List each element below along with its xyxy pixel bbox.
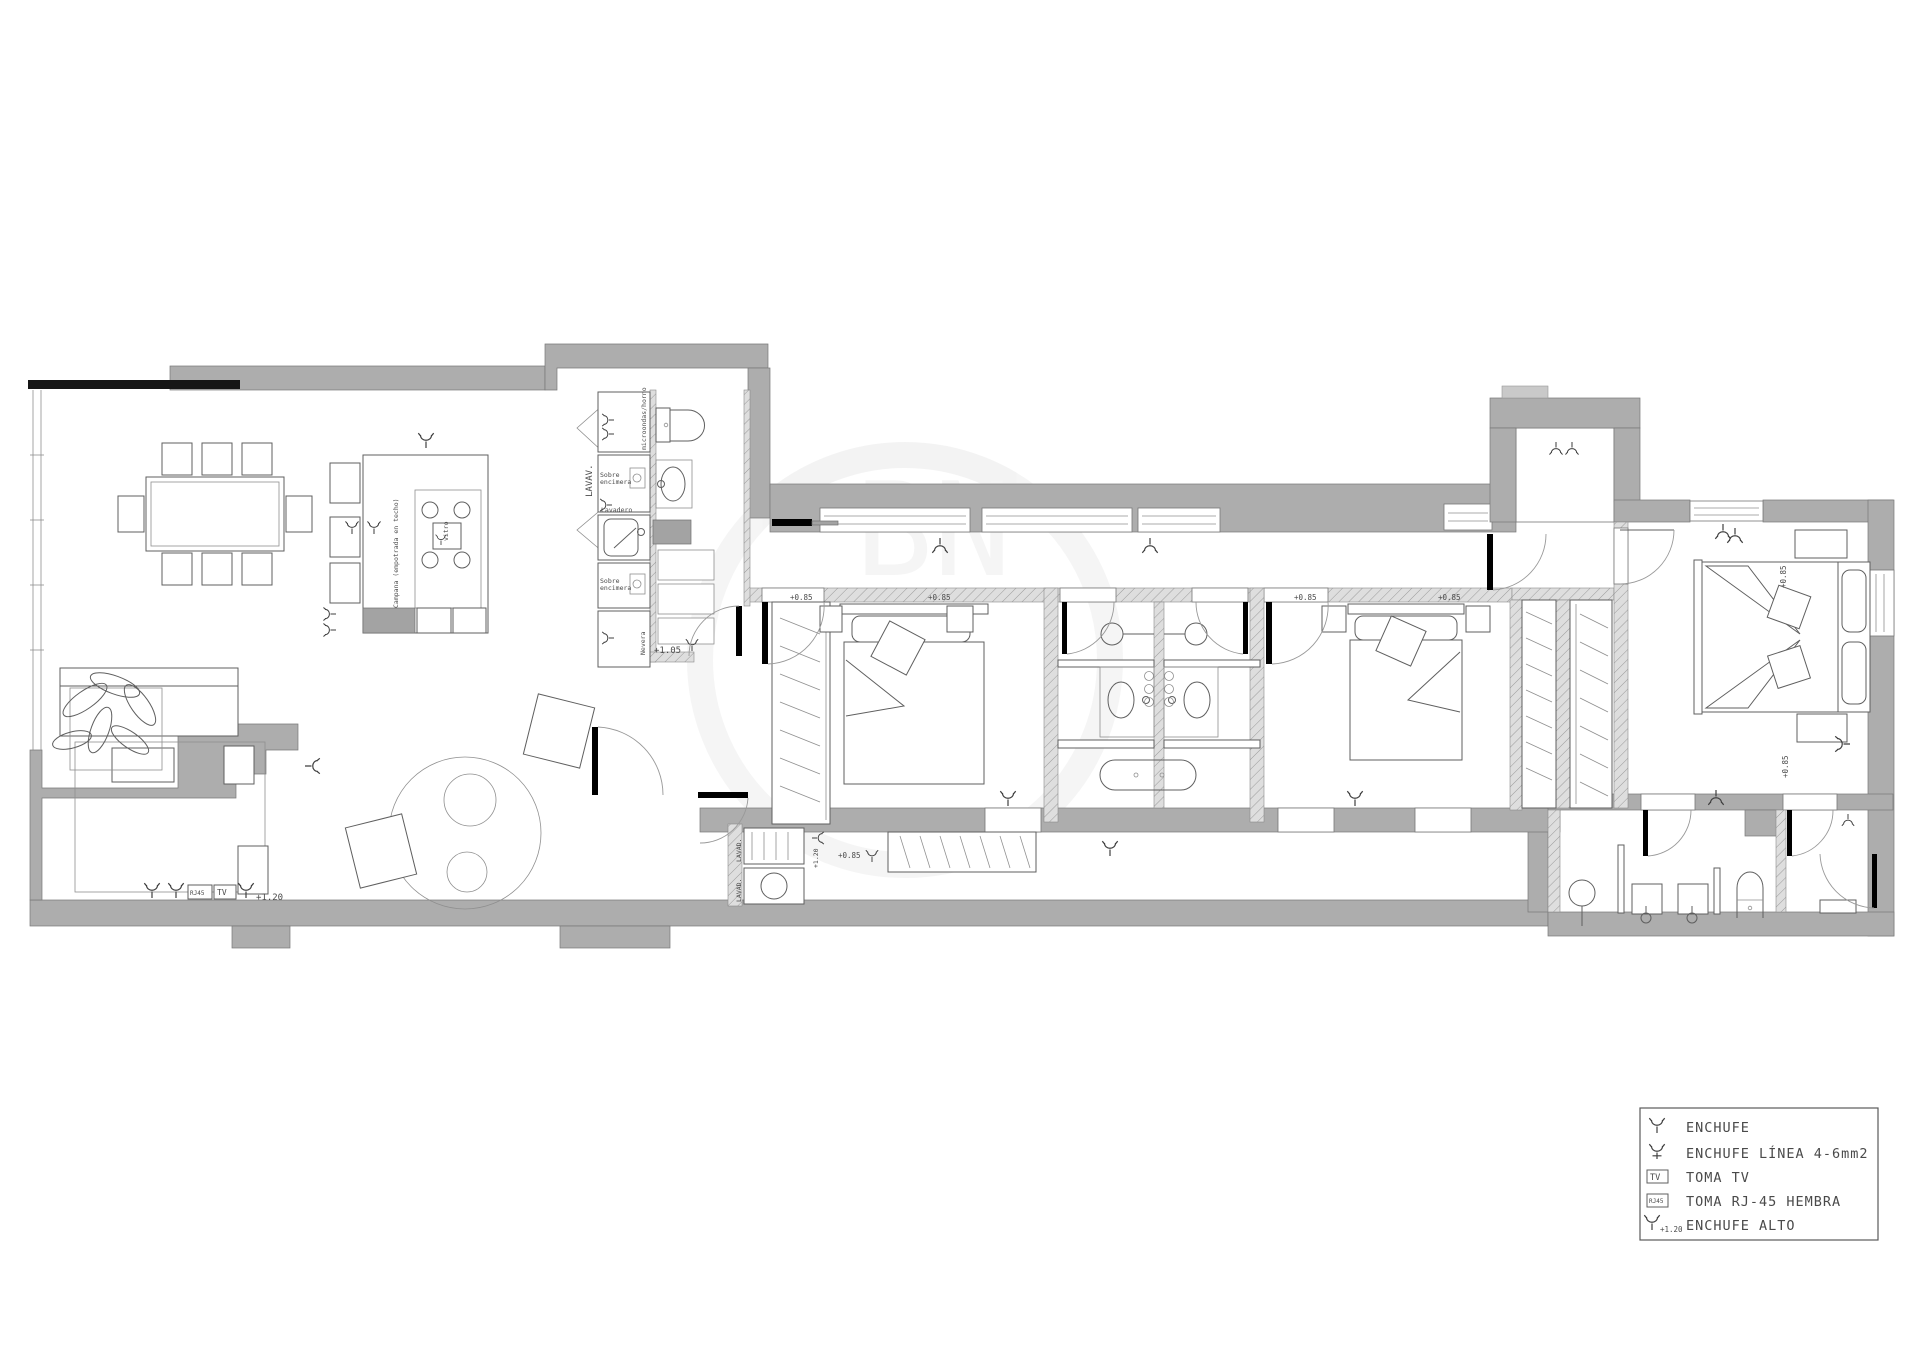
corridor-window-4 xyxy=(1444,504,1492,530)
opening-south-3 xyxy=(1415,808,1471,832)
dining-chair xyxy=(242,443,272,475)
wall-wardrobe-north xyxy=(1512,588,1614,600)
wall-wardrobe-mid xyxy=(1556,600,1570,808)
svg-text:RJ45: RJ45 xyxy=(190,890,205,897)
wall-right-outer xyxy=(1868,500,1894,936)
entry-hall-floor xyxy=(1516,428,1614,522)
armchair xyxy=(345,814,416,888)
enchufe-icon xyxy=(323,623,336,636)
stool xyxy=(330,517,360,557)
dining-chair xyxy=(202,443,232,475)
enchufe-icon xyxy=(1000,791,1015,806)
footboard xyxy=(1694,560,1702,714)
campana-label: Campana (empotrada en techo) xyxy=(392,498,400,608)
svg-text:RJ45: RJ45 xyxy=(1649,1198,1664,1205)
sink xyxy=(1632,884,1662,914)
wall-wardrobe-left xyxy=(1510,600,1522,810)
wall-south-step-1 xyxy=(232,926,290,948)
wall-bath-br-left xyxy=(1548,810,1560,912)
enchufe-icon xyxy=(144,883,159,898)
corridor-window-1 xyxy=(820,508,970,532)
entry-door[interactable] xyxy=(1487,534,1493,590)
sofa xyxy=(60,686,238,736)
wc-shelf xyxy=(658,618,714,644)
dining-chair xyxy=(202,553,232,585)
wardrobe xyxy=(1570,600,1612,808)
dining-area xyxy=(118,443,312,585)
nevera-label: Nevera xyxy=(639,631,647,655)
enchufe-icon xyxy=(1347,791,1362,806)
wall-black-band xyxy=(28,380,240,389)
bath-right-door[interactable] xyxy=(1243,602,1248,654)
master-window-top xyxy=(1690,501,1763,521)
bathroom-master xyxy=(1569,810,1877,926)
shower-head xyxy=(1569,880,1595,906)
kitchen-island xyxy=(363,455,488,633)
enchufe-icon xyxy=(323,607,336,620)
wall-top-kitchen xyxy=(545,344,768,390)
height-label: +0.85 xyxy=(1779,565,1788,588)
side-table xyxy=(238,846,268,894)
enchufe-icon xyxy=(1727,528,1742,543)
dining-chair xyxy=(286,496,312,532)
svg-text:ENCHUFE LÍNEA 4-6mm2: ENCHUFE LÍNEA 4-6mm2 xyxy=(1686,1145,1869,1162)
wall-entry-top xyxy=(1490,398,1640,428)
wall-entry-cap xyxy=(1502,386,1548,398)
washing-machine xyxy=(744,828,804,864)
island-cabinet xyxy=(453,608,486,633)
nightstand xyxy=(1466,606,1490,632)
bathroom-wall-stub xyxy=(1745,810,1777,836)
shower-head xyxy=(1185,623,1207,645)
vitro-label: vitro xyxy=(442,521,450,541)
svg-text:+1.20: +1.20 xyxy=(1660,1225,1683,1234)
svg-text:encimera: encimera xyxy=(600,478,631,486)
sofa-back xyxy=(60,668,238,686)
height-label: +0.85 xyxy=(1438,593,1461,602)
wc-shelf-gray xyxy=(653,520,691,544)
bath-left-door[interactable] xyxy=(1062,602,1067,654)
legend: ENCHUFE ENCHUFE LÍNEA 4-6mm2 TV TOMA TV … xyxy=(1640,1108,1878,1240)
svg-text:TOMA TV: TOMA TV xyxy=(1686,1170,1750,1186)
master-bedroom: +0.85 +0.85 xyxy=(1620,524,1870,778)
left-window-band xyxy=(30,390,44,750)
side-cushion xyxy=(224,746,254,784)
wc-shelf xyxy=(658,584,714,614)
bed xyxy=(1348,604,1464,760)
wall-bathroom-south xyxy=(1548,912,1894,936)
dining-chair xyxy=(162,443,192,475)
lavad-label: LAVAD. xyxy=(735,839,743,862)
island-cabinet xyxy=(417,608,451,633)
lavav-label: LAVAV. xyxy=(585,464,595,497)
partition xyxy=(1714,868,1720,914)
armchair xyxy=(523,694,594,768)
wc-shelf xyxy=(658,550,714,580)
enchufe-icon xyxy=(1142,538,1157,553)
shower-screen xyxy=(1058,660,1154,667)
toilet xyxy=(656,408,705,442)
bench xyxy=(1164,740,1260,748)
svg-text:ENCHUFE: ENCHUFE xyxy=(1686,1120,1750,1136)
height-label: +0.85 xyxy=(1294,593,1317,602)
svg-text:encimera: encimera xyxy=(600,584,631,592)
height-label: +1.20 xyxy=(812,848,820,868)
toilet xyxy=(1737,872,1763,918)
coffee-table xyxy=(444,774,496,826)
wall-bath-br-div xyxy=(1776,810,1786,912)
svg-text:TV: TV xyxy=(217,888,227,897)
wall-wc-right xyxy=(744,390,750,606)
shower-screen xyxy=(1618,845,1624,913)
corridor-closet xyxy=(888,832,1036,872)
wardrobe xyxy=(772,602,830,824)
nightstand xyxy=(1797,714,1847,742)
ottoman xyxy=(112,748,174,782)
bedroom-1: +0.85 +0.85 xyxy=(762,593,1016,824)
bedroom1-door[interactable] xyxy=(762,602,768,664)
wall-kitchen-right xyxy=(748,368,770,518)
enchufe-icon xyxy=(1102,841,1117,856)
kitchen: vitro Campana (empotrada en techo) LAVAV… xyxy=(330,387,650,667)
enchufe-icon xyxy=(418,433,433,448)
floor-plan-page: BN xyxy=(0,0,1920,1357)
height-label: +0.85 xyxy=(928,593,951,602)
wall-bath-left xyxy=(1044,588,1058,822)
stool xyxy=(330,463,360,503)
svg-text:ENCHUFE ALTO: ENCHUFE ALTO xyxy=(1686,1218,1796,1234)
wall-entry-right xyxy=(1614,428,1640,502)
enchufe-icon xyxy=(305,758,320,773)
wc-door[interactable] xyxy=(736,606,742,656)
lavad-label: LAVAD. xyxy=(735,879,743,902)
floor-plan-drawing: BN xyxy=(0,0,1920,1357)
island-cabinet-gray xyxy=(363,608,415,633)
enchufe-icon xyxy=(1842,814,1854,826)
small-appliance xyxy=(630,468,645,488)
bathroom-door-opening-2 xyxy=(1783,794,1837,810)
master-window-right xyxy=(1868,570,1894,636)
wardrobe xyxy=(1522,600,1556,808)
bath-door[interactable] xyxy=(1643,810,1648,856)
bedroom2-door[interactable] xyxy=(1266,602,1272,664)
pillow xyxy=(1842,570,1866,632)
coffee-table xyxy=(447,852,487,892)
height-label: +1.05 xyxy=(654,646,681,656)
bench xyxy=(1058,740,1154,748)
wall-entry-left xyxy=(1490,428,1516,522)
enchufe-icon xyxy=(1715,524,1730,539)
wall-bedrooms-north xyxy=(748,588,1512,602)
opening-south-2 xyxy=(1278,808,1334,832)
corridor-window-2 xyxy=(982,508,1132,532)
nightstand xyxy=(1795,530,1847,558)
dining-chair xyxy=(162,553,192,585)
dining-chair xyxy=(242,553,272,585)
enchufe-icon xyxy=(168,883,183,898)
dining-chair xyxy=(118,496,144,532)
nightstand xyxy=(1322,606,1346,632)
laundry-door[interactable] xyxy=(698,792,748,798)
stool xyxy=(330,563,360,603)
corridor-door[interactable] xyxy=(592,727,598,795)
svg-text:TV: TV xyxy=(1650,1173,1660,1183)
small-appliance xyxy=(630,574,645,594)
wall-master-top-left xyxy=(1614,500,1690,522)
round-rug xyxy=(389,757,541,909)
sink xyxy=(1678,884,1708,914)
headboard xyxy=(1348,604,1464,614)
height-label: +1.20 xyxy=(256,893,283,903)
height-label: +0.85 xyxy=(838,851,861,860)
height-label: +0.85 xyxy=(790,593,813,602)
wall-bath-right xyxy=(1250,588,1264,822)
nightstand xyxy=(947,606,973,632)
wall-south-step-2 xyxy=(560,926,670,948)
shower-screen xyxy=(1164,660,1260,667)
svg-text:TOMA RJ-45 HEMBRA: TOMA RJ-45 HEMBRA xyxy=(1686,1194,1841,1210)
bathroom-door-opening-1 xyxy=(1641,794,1695,810)
bath-inner-door[interactable] xyxy=(1872,854,1877,908)
pillow xyxy=(1842,642,1866,704)
sink xyxy=(1184,682,1210,718)
microondas-label: microondas/horno xyxy=(640,387,648,450)
opening-south-1 xyxy=(985,808,1041,832)
bathtub xyxy=(1100,760,1196,790)
dryer xyxy=(744,868,804,904)
bath-door[interactable] xyxy=(1787,810,1792,856)
dining-table xyxy=(146,477,284,551)
mattress xyxy=(1702,562,1838,712)
corridor-window-3 xyxy=(1138,508,1220,532)
height-label: +0.85 xyxy=(1781,755,1790,778)
